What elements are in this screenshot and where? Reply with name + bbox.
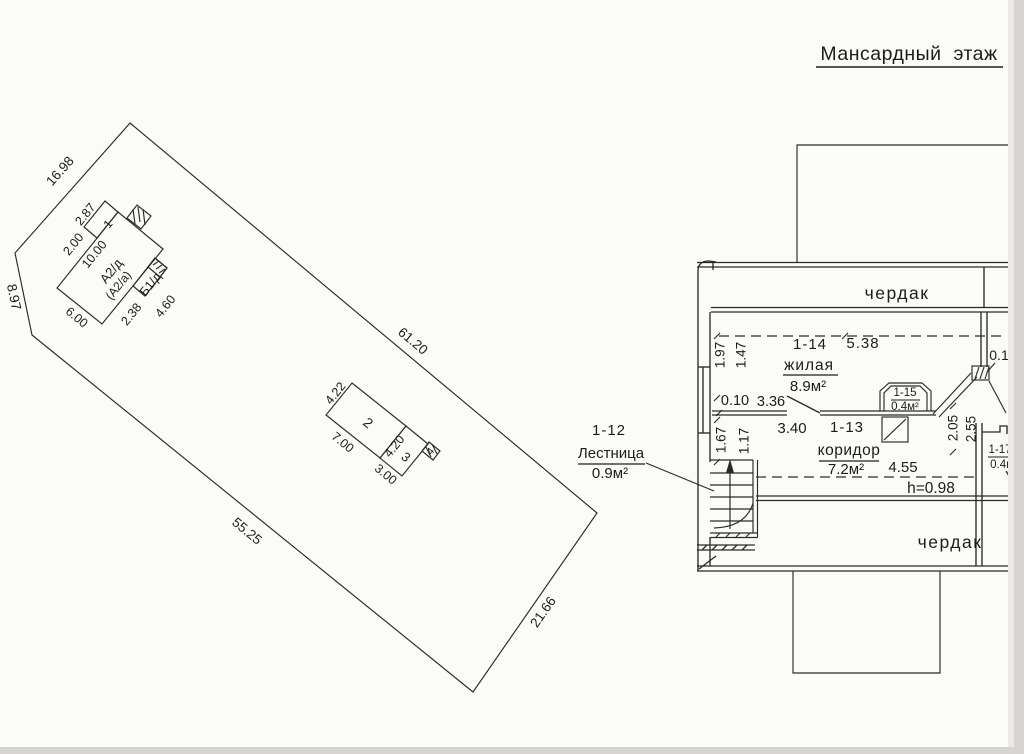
leader-line-stairs xyxy=(646,463,714,491)
room-corridor-area: 7.2м² xyxy=(828,461,864,478)
leader-line-0-1 xyxy=(987,363,995,372)
dim-2-55: 2.55 xyxy=(964,416,979,442)
floor-plan-drawing: Мансардный этаж чердак чердак 1-14 5.38 … xyxy=(0,0,1024,754)
dim-3-00: 3.00 xyxy=(372,461,400,487)
dim-4-22: 4.22 xyxy=(322,379,348,407)
house-part-1-label: 1 xyxy=(100,217,115,231)
scan-edge-bottom xyxy=(0,747,1024,754)
roof-outline-bottom xyxy=(793,571,940,673)
room-closet15-number: 1-15 xyxy=(893,387,916,399)
dim-6-00: 6.00 xyxy=(63,304,91,330)
roof-outline-top xyxy=(797,145,1010,263)
house-hatch-block xyxy=(127,205,151,229)
room-living-name: жилая xyxy=(784,357,834,374)
attic-label-bottom: чердак xyxy=(918,532,983,552)
parcel-boundary xyxy=(15,123,597,692)
dim-1-97: 1.97 xyxy=(713,342,728,368)
roof-window-symbol xyxy=(882,417,908,442)
barn-annex-label: 3 xyxy=(398,449,413,465)
dim-3-40: 3.40 xyxy=(777,420,806,437)
dim-1-17: 1.17 xyxy=(737,428,752,454)
attic-label-top: чердак xyxy=(865,283,930,303)
page-title: Мансардный этаж xyxy=(820,43,997,65)
dim-1-47: 1.47 xyxy=(734,342,749,368)
room-closet15-area: 0.4м² xyxy=(891,401,919,413)
stairs-direction-arrow xyxy=(726,459,734,529)
room-corridor-number: 1-13 xyxy=(830,419,864,436)
dim-height-0-98: h=0.98 xyxy=(907,480,955,497)
attic-ladder xyxy=(933,366,1006,417)
room-living-number: 1-14 xyxy=(793,336,827,353)
dim-4-55: 4.55 xyxy=(888,459,917,476)
dim-4-60: 4.60 xyxy=(152,292,178,320)
stairs xyxy=(710,460,758,538)
room-living-area: 8.9м² xyxy=(790,378,826,395)
barn-number-label: 2 xyxy=(360,414,376,431)
text-underlines xyxy=(578,67,1013,464)
dim-3-36: 3.36 xyxy=(757,394,785,410)
room-stairs-area: 0.9м² xyxy=(592,465,628,482)
dim-61-20: 61.20 xyxy=(395,324,431,357)
dim-8-97: 8.97 xyxy=(4,283,24,312)
room-stairs-name: Лестница xyxy=(578,445,645,462)
room-stairs-number: 1-12 xyxy=(592,422,626,439)
dim-2-38: 2.38 xyxy=(118,300,144,328)
dim-2-00: 2.00 xyxy=(60,230,86,258)
dim-2-05: 2.05 xyxy=(946,415,961,441)
dim-16-98: 16.98 xyxy=(43,153,77,188)
dim-1-67: 1.67 xyxy=(714,427,729,453)
room-corridor-name: коридор xyxy=(818,442,881,459)
dim-21-66: 21.66 xyxy=(527,594,559,630)
dim-5-38: 5.38 xyxy=(846,335,879,352)
scanned-floor-plan-page: Мансардный этаж чердак чердак 1-14 5.38 … xyxy=(0,0,1024,754)
scan-edge-right xyxy=(1008,0,1024,754)
dim-0-1: 0.1 xyxy=(989,347,1009,363)
dim-7-00: 7.00 xyxy=(329,429,357,455)
dim-0-10: 0.10 xyxy=(721,393,749,409)
house-annex-b-label: Б1/д xyxy=(137,269,165,299)
